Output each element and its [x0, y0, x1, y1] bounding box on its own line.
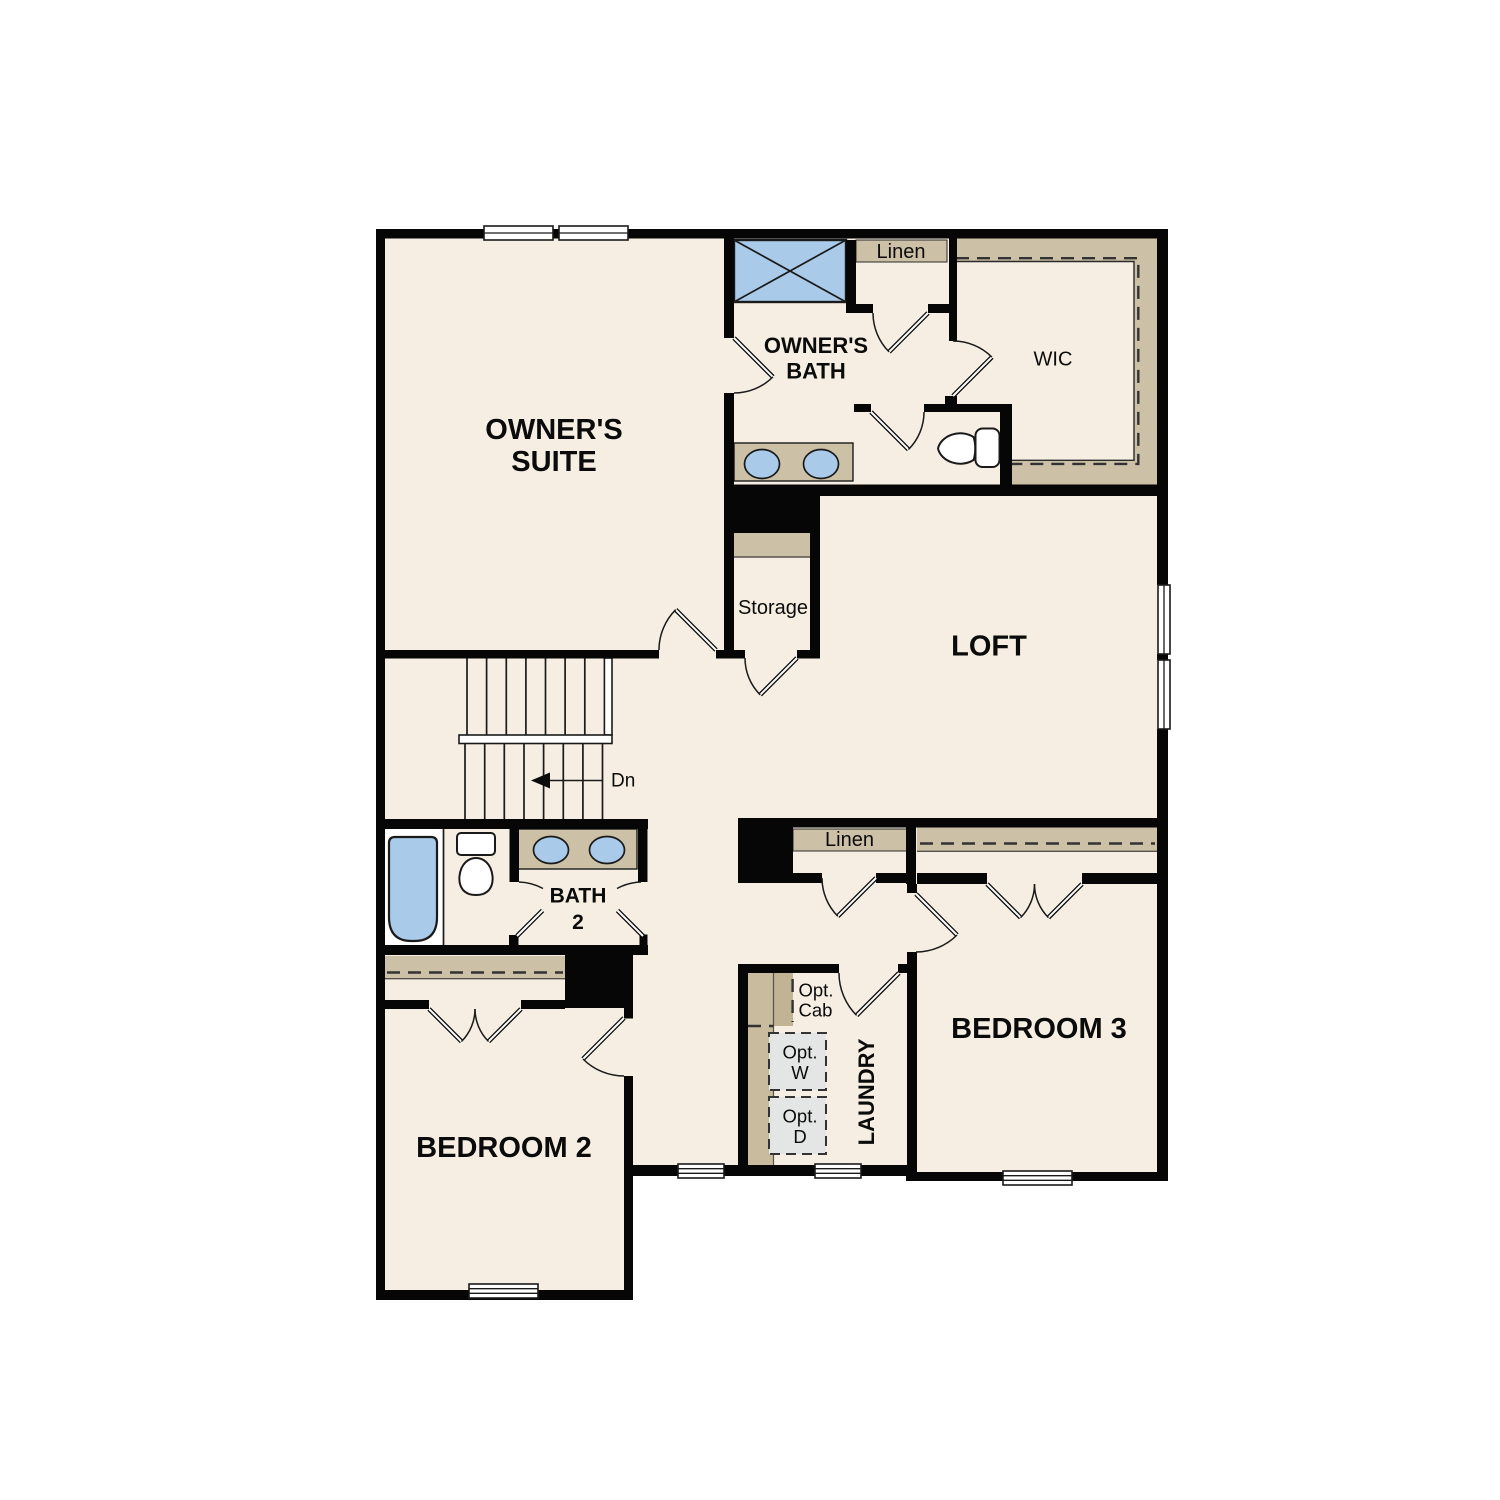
svg-text:OWNER'S: OWNER'S: [764, 333, 868, 358]
svg-text:BATH: BATH: [550, 885, 607, 908]
svg-text:D: D: [793, 1126, 806, 1147]
svg-text:SUITE: SUITE: [511, 446, 596, 478]
svg-text:LOFT: LOFT: [951, 631, 1027, 663]
svg-text:Opt.: Opt.: [799, 980, 834, 1001]
svg-text:BEDROOM 2: BEDROOM 2: [416, 1132, 592, 1164]
svg-text:Opt.: Opt.: [783, 1042, 818, 1063]
svg-text:Storage: Storage: [738, 597, 808, 619]
svg-text:BATH: BATH: [786, 359, 845, 384]
svg-text:2: 2: [572, 911, 584, 934]
svg-text:OWNER'S: OWNER'S: [485, 414, 622, 446]
svg-text:Opt.: Opt.: [783, 1106, 818, 1127]
svg-text:Dn: Dn: [611, 771, 635, 792]
svg-text:Linen: Linen: [825, 829, 874, 851]
svg-text:Linen: Linen: [877, 241, 926, 263]
svg-text:WIC: WIC: [1034, 349, 1073, 371]
svg-text:W: W: [791, 1062, 809, 1083]
svg-text:LAUNDRY: LAUNDRY: [854, 1038, 879, 1145]
svg-text:BEDROOM 3: BEDROOM 3: [951, 1013, 1127, 1045]
svg-text:Cab: Cab: [799, 1000, 833, 1021]
